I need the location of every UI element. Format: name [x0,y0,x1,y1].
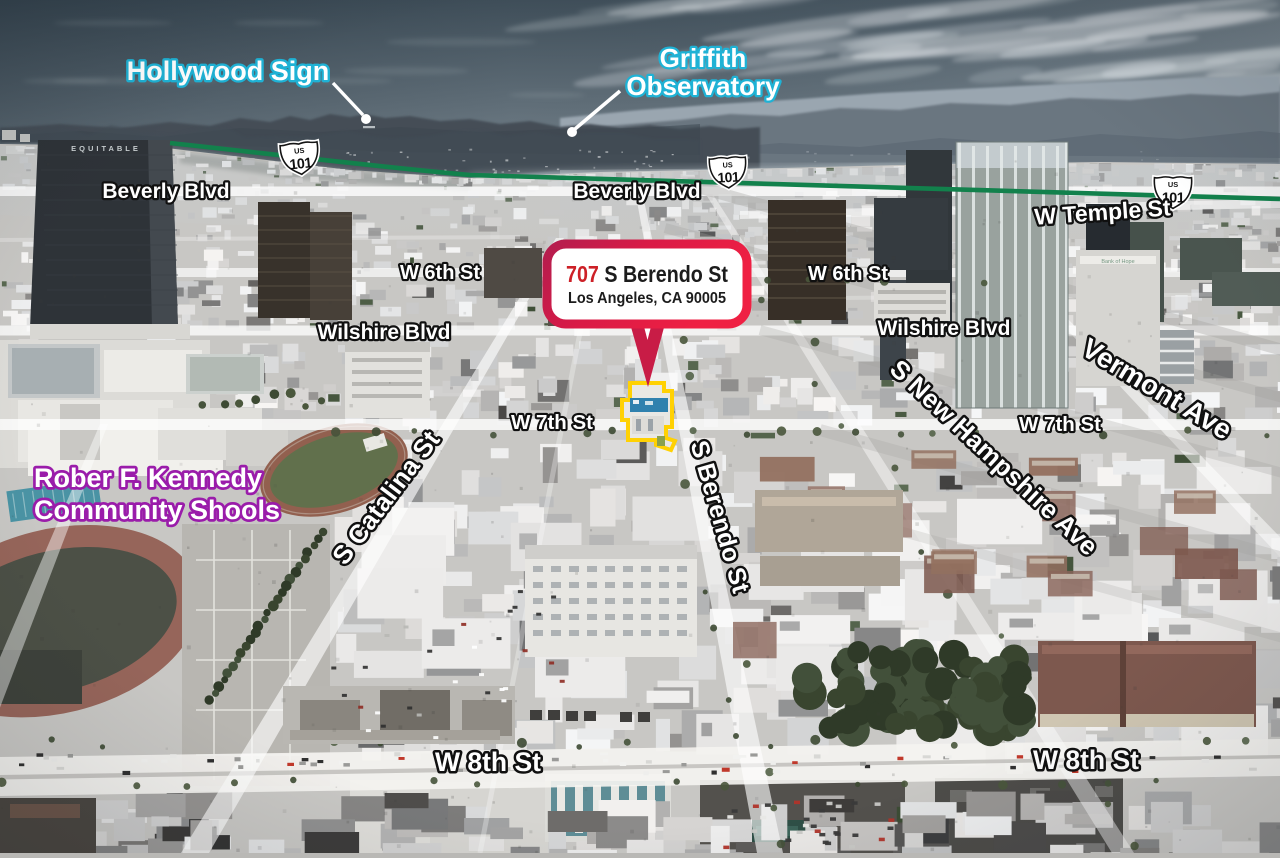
svg-text:707 S Berendo St: 707 S Berendo St [566,261,728,287]
svg-text:Los Angeles, CA 90005: Los Angeles, CA 90005 [568,290,726,307]
